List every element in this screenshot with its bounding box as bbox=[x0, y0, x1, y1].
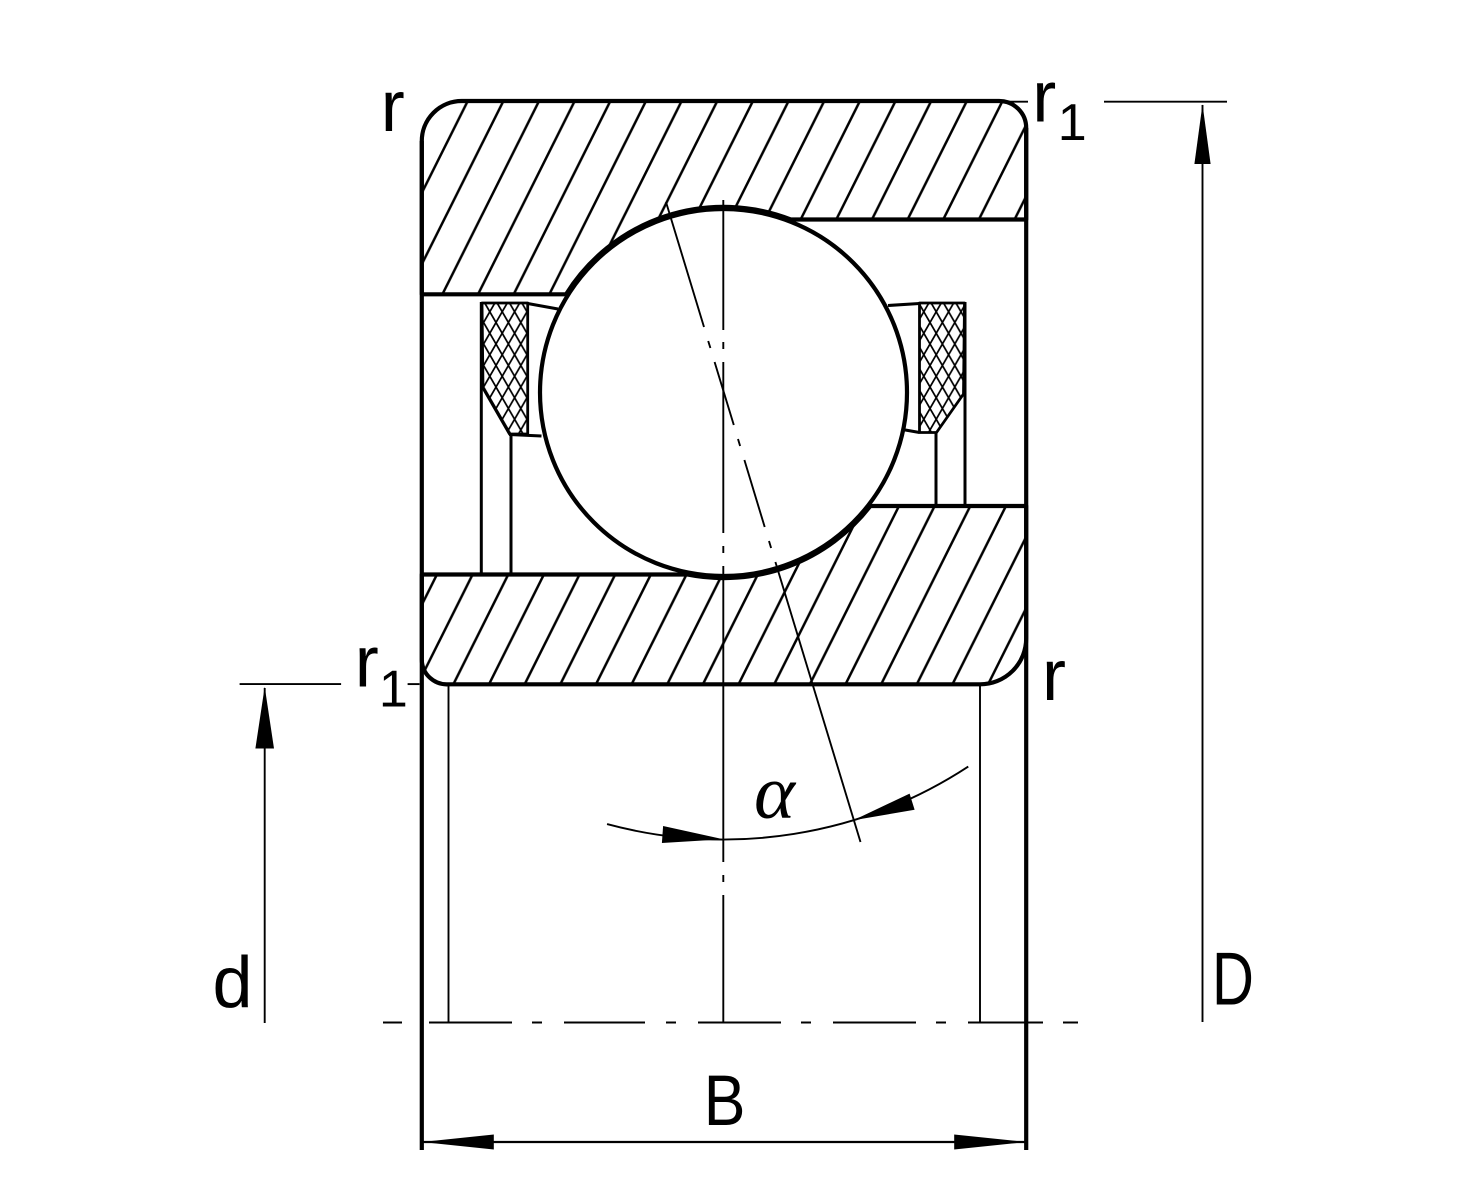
svg-text:r: r bbox=[381, 67, 405, 147]
svg-text:r: r bbox=[355, 623, 379, 703]
svg-text:d: d bbox=[213, 943, 253, 1023]
svg-text:α: α bbox=[754, 751, 797, 835]
svg-text:B: B bbox=[704, 1062, 746, 1141]
svg-text:1: 1 bbox=[1058, 94, 1087, 152]
svg-text:D: D bbox=[1212, 936, 1254, 1020]
svg-text:r: r bbox=[1032, 57, 1056, 137]
svg-text:r: r bbox=[1042, 636, 1066, 716]
svg-text:1: 1 bbox=[379, 660, 408, 718]
